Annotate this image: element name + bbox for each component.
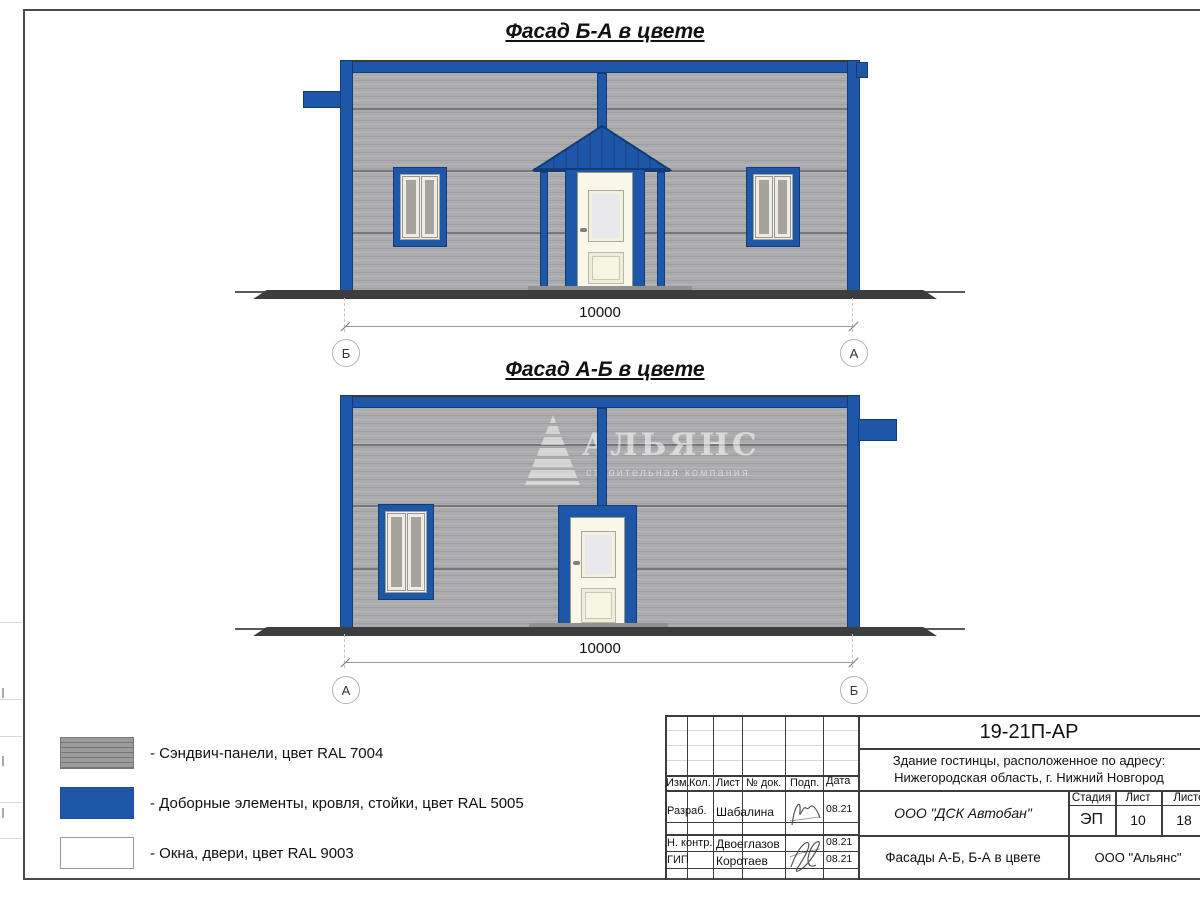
door-glass bbox=[581, 531, 616, 578]
title-block: 19-21П-АР Здание гостинцы, расположенное… bbox=[665, 715, 1200, 880]
downpipe bbox=[597, 408, 607, 507]
margin-line bbox=[0, 838, 22, 839]
tb-col-kol: Кол. bbox=[689, 777, 711, 789]
door-panel bbox=[581, 588, 616, 623]
signer-role: Н. контр. bbox=[667, 837, 712, 849]
tb-col-data: Дата bbox=[826, 775, 850, 787]
window-sash bbox=[422, 177, 438, 237]
window-frame bbox=[753, 174, 793, 240]
entry-door bbox=[565, 169, 645, 293]
facade-top-building bbox=[340, 60, 860, 295]
window bbox=[378, 504, 434, 600]
tb-line bbox=[665, 730, 858, 731]
tb-line bbox=[665, 822, 858, 823]
sheets-label: Листов bbox=[1161, 791, 1200, 805]
corner-post-left bbox=[340, 60, 353, 295]
tb-line bbox=[665, 760, 858, 761]
door-leaf bbox=[570, 517, 625, 628]
signer-name: Шабалина bbox=[716, 805, 774, 819]
gutter-left bbox=[303, 91, 341, 108]
tb-col-izm: Изм. bbox=[666, 777, 690, 789]
legend-item-panels: - Сэндвич-панели, цвет RAL 7004 bbox=[60, 737, 383, 769]
corner-post-right bbox=[847, 60, 860, 295]
window bbox=[393, 167, 447, 247]
sheet-label: Лист bbox=[1115, 791, 1161, 805]
signer-date: 08.21 bbox=[826, 853, 852, 865]
gutter-outlet-right bbox=[856, 62, 868, 78]
facade-bottom-building: АЛЬЯНС строительная компания bbox=[340, 395, 860, 630]
project-address-line1: Здание гостинцы, расположенное по адресу… bbox=[861, 751, 1197, 769]
entry-door bbox=[558, 505, 637, 630]
contractor: ООО "ДСК Автобан" bbox=[858, 790, 1068, 835]
window-sash bbox=[388, 514, 405, 590]
door-leaf bbox=[577, 172, 633, 291]
window-sash bbox=[775, 177, 791, 237]
facade-top-title: Фасад Б-А в цвете bbox=[300, 20, 910, 44]
frame-top-line bbox=[23, 9, 1200, 11]
porch-roof bbox=[532, 124, 672, 173]
facade-bottom-title: Фасад А-Б в цвете bbox=[300, 358, 910, 382]
margin-mark bbox=[2, 688, 4, 698]
signer-date: 08.21 bbox=[826, 836, 852, 848]
axis-bubble-right: Б bbox=[840, 676, 868, 704]
dimension-value: 10000 bbox=[450, 640, 750, 657]
tb-col-podp: Подп. bbox=[790, 777, 819, 789]
roof-trim-band bbox=[340, 60, 860, 73]
axis-bubble-left: А bbox=[332, 676, 360, 704]
door-panel bbox=[588, 252, 624, 284]
frame-left-line bbox=[23, 9, 25, 880]
margin-mark bbox=[2, 756, 4, 766]
dimension-line bbox=[345, 662, 853, 663]
margin-line bbox=[0, 802, 22, 803]
drawing-sheet: Фасад Б-А в цвете bbox=[0, 0, 1200, 900]
legend-item-windows: - Окна, двери, цвет RAL 9003 bbox=[60, 837, 354, 869]
signature bbox=[786, 793, 823, 833]
tb-line bbox=[665, 868, 858, 869]
downpipe bbox=[597, 73, 607, 129]
margin-line bbox=[0, 699, 22, 700]
ground-band bbox=[253, 627, 937, 636]
stage-value: ЭП bbox=[1068, 805, 1115, 835]
signer-role: ГИП bbox=[667, 854, 689, 866]
doc-number: 19-21П-АР bbox=[858, 717, 1200, 747]
window-sash bbox=[756, 177, 772, 237]
legend-label: - Окна, двери, цвет RAL 9003 bbox=[150, 845, 354, 862]
legend-label: - Доборные элементы, кровля, стойки, цве… bbox=[150, 795, 524, 812]
gutter-right bbox=[858, 419, 897, 441]
window-sash bbox=[403, 177, 419, 237]
watermark-name: АЛЬЯНС bbox=[582, 427, 760, 463]
sheet-value: 10 bbox=[1115, 805, 1161, 835]
porch-post-right bbox=[657, 172, 665, 293]
legend-item-trim: - Доборные элементы, кровля, стойки, цве… bbox=[60, 787, 524, 819]
window-frame bbox=[385, 511, 427, 593]
watermark-tagline: строительная компания bbox=[586, 467, 750, 479]
tb-line bbox=[823, 715, 824, 880]
sheet-title: Фасады А-Б, Б-А в цвете bbox=[858, 835, 1068, 880]
legend-swatch-windows bbox=[60, 837, 134, 869]
dimension-value: 10000 bbox=[450, 304, 750, 321]
stage-label: Стадия bbox=[1068, 791, 1115, 805]
margin-line bbox=[0, 736, 22, 737]
ground-band bbox=[253, 290, 937, 299]
roof-trim-band bbox=[340, 395, 860, 408]
window bbox=[746, 167, 800, 247]
legend-swatch-trim bbox=[60, 787, 134, 819]
sheets-value: 18 bbox=[1161, 805, 1200, 835]
signature bbox=[786, 833, 823, 877]
signer-date: 08.21 bbox=[826, 803, 852, 815]
margin-mark bbox=[2, 808, 4, 818]
tb-col-list: Лист bbox=[716, 777, 740, 789]
tb-line bbox=[713, 715, 714, 880]
tb-col-ndok: № док. bbox=[746, 777, 781, 789]
window-frame bbox=[400, 174, 440, 240]
door-glass bbox=[588, 190, 624, 242]
corner-post-left bbox=[340, 395, 353, 630]
margin-line bbox=[0, 622, 22, 623]
signer-name: Двоеглазов bbox=[716, 837, 780, 851]
tb-line bbox=[665, 745, 858, 746]
door-handle bbox=[573, 561, 580, 565]
tb-line bbox=[665, 851, 858, 852]
porch-post-left bbox=[540, 172, 548, 293]
signer-name: Коротаев bbox=[716, 854, 768, 868]
project-address-line2: Нижегородская область, г. Нижний Новгоро… bbox=[861, 768, 1197, 786]
dimension-line bbox=[345, 326, 853, 327]
legend-swatch-panels bbox=[60, 737, 134, 769]
window-sash bbox=[408, 514, 425, 590]
door-handle bbox=[580, 228, 587, 232]
legend-label: - Сэндвич-панели, цвет RAL 7004 bbox=[150, 745, 383, 762]
signer-role: Разраб. bbox=[667, 805, 707, 817]
organization: ООО "Альянс" bbox=[1068, 835, 1200, 880]
tb-line bbox=[858, 748, 1200, 750]
alliance-pyramid-logo bbox=[525, 415, 580, 485]
